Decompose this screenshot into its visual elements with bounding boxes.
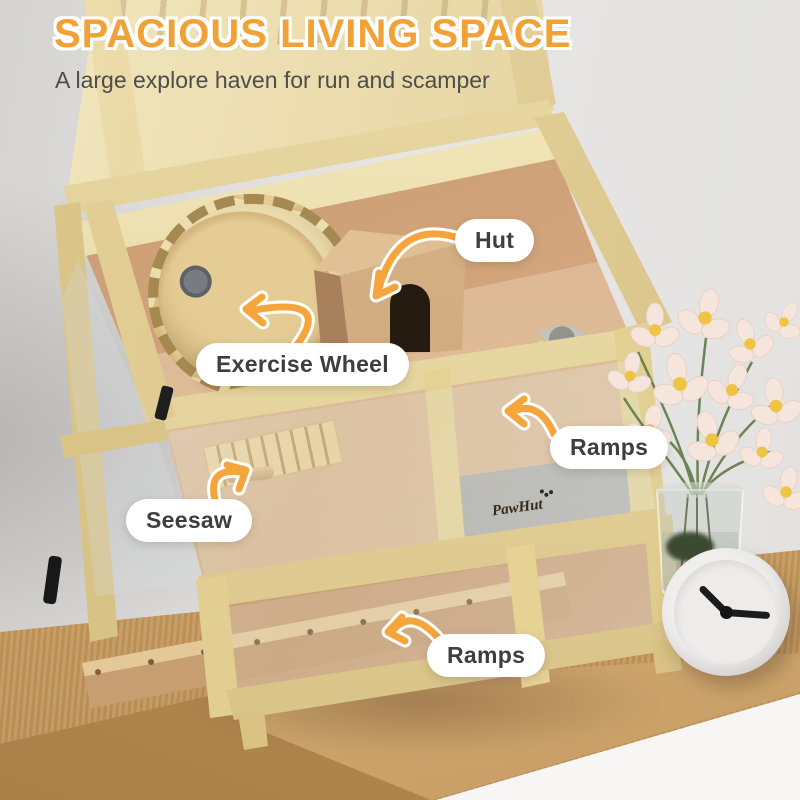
callout-hut: Hut <box>455 219 534 262</box>
callout-ramps-lower: Ramps <box>427 634 545 677</box>
callout-exercise-wheel: Exercise Wheel <box>196 343 409 386</box>
page-subtitle: A large explore haven for run and scampe… <box>55 67 490 94</box>
clock <box>662 548 790 676</box>
product-marketing-image: PawHut <box>0 0 800 800</box>
page-title: SPACIOUS LIVING SPACE <box>54 12 571 57</box>
clock-center-cap <box>720 606 733 619</box>
wheel-hub <box>177 263 215 301</box>
callout-ramps-upper: Ramps <box>550 426 668 469</box>
hut-door <box>390 284 430 352</box>
callout-seesaw: Seesaw <box>126 499 252 542</box>
